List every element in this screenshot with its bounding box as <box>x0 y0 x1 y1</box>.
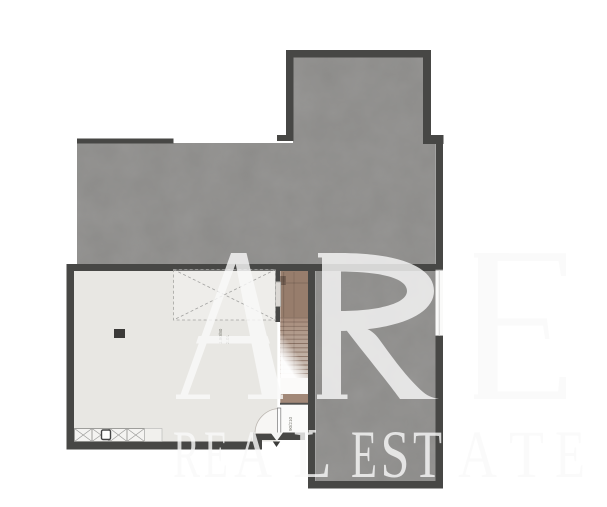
svg-text:L: L <box>293 416 332 492</box>
svg-text:T: T <box>509 416 544 492</box>
svg-text:T: T <box>413 416 442 492</box>
svg-text:E: E <box>351 416 377 492</box>
svg-text:S: S <box>381 416 410 492</box>
svg-text:A: A <box>458 416 497 492</box>
svg-text:A: A <box>234 416 272 492</box>
svg-text:E: E <box>555 416 585 492</box>
svg-text:E: E <box>204 416 228 492</box>
svg-text:R: R <box>173 416 200 492</box>
